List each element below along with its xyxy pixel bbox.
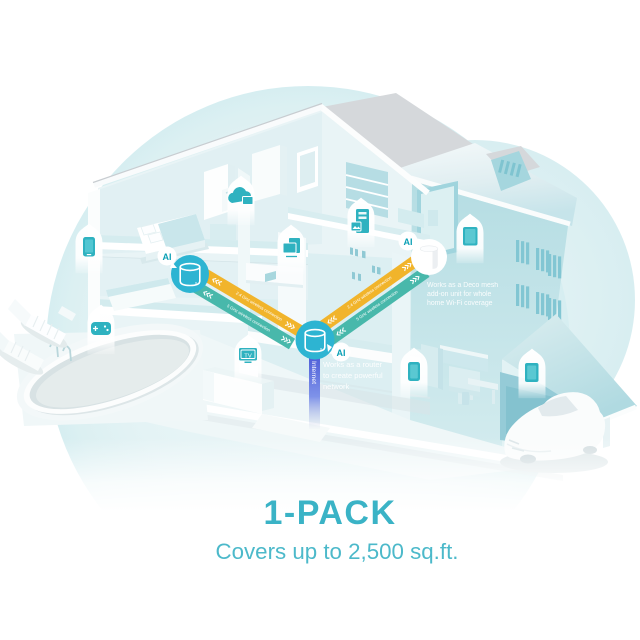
svg-text:to create powerful: to create powerful — [323, 371, 383, 380]
svg-text:Covers up to 2,500 sq.ft.: Covers up to 2,500 sq.ft. — [216, 539, 459, 564]
svg-text:home Wi-Fi coverage: home Wi-Fi coverage — [427, 300, 493, 307]
svg-text:Works as a Deco mesh: Works as a Deco mesh — [427, 282, 498, 289]
svg-text:Internet: Internet — [310, 361, 317, 384]
svg-text:AI: AI — [337, 348, 346, 358]
svg-text:TV: TV — [244, 353, 252, 359]
svg-text:network: network — [323, 382, 350, 391]
svg-text:Works as a router: Works as a router — [323, 360, 383, 369]
svg-text:AI: AI — [404, 237, 413, 247]
svg-text:1-PACK: 1-PACK — [263, 494, 396, 532]
svg-text:add-on unit for whole: add-on unit for whole — [427, 291, 492, 298]
svg-text:AI: AI — [163, 252, 172, 262]
